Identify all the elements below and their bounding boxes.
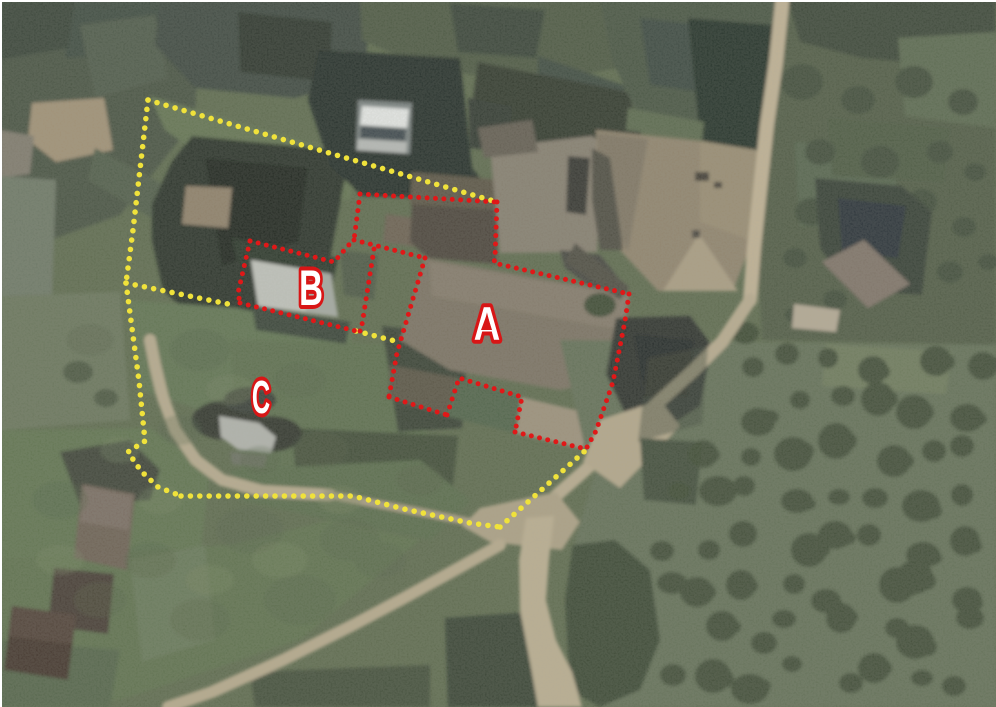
svg-text:B: B xyxy=(299,260,323,315)
svg-text:C: C xyxy=(252,371,270,423)
